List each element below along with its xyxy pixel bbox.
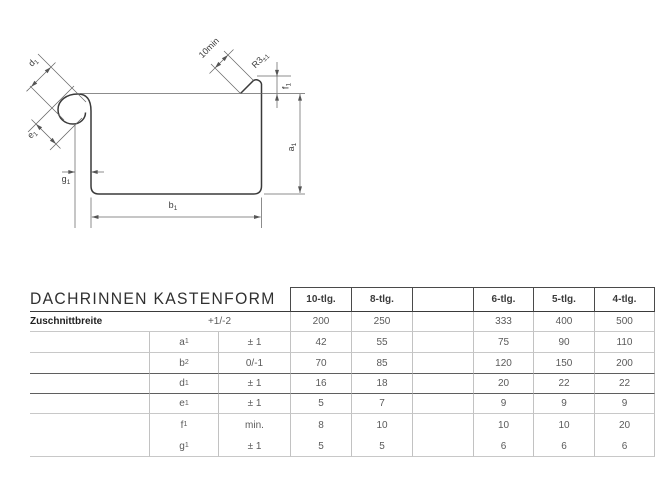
tolerance-g1: ± 1 xyxy=(218,436,290,457)
value-cell: 16 xyxy=(290,374,351,394)
flange-tail-1 xyxy=(210,68,216,74)
row-spacer xyxy=(30,394,149,414)
value-cell: 10 xyxy=(533,414,594,436)
value-cell xyxy=(412,414,473,436)
row-spacer xyxy=(30,436,149,457)
value-cell: 9 xyxy=(533,394,594,414)
value-cell xyxy=(412,436,473,457)
value-cell: 18 xyxy=(351,374,412,394)
page-title: DACHRINNEN KASTENFORM xyxy=(30,287,290,312)
tolerance-f1: min. xyxy=(218,414,290,436)
gutter-profile-drawing: d1 e1 g1 b1 a1 f1 10min R3±1 xyxy=(0,0,670,282)
dim-label-flange-min: 10min xyxy=(197,36,221,60)
flange-dimension xyxy=(215,55,228,68)
dim-label-g1: g1 xyxy=(62,174,71,186)
value-cell: 90 xyxy=(533,332,594,353)
row-spacer xyxy=(30,332,149,353)
value-cell: 6 xyxy=(533,436,594,457)
row-spacer xyxy=(30,414,149,436)
value-cell: 75 xyxy=(473,332,533,353)
value-cell: 9 xyxy=(594,394,655,414)
value-cell: 70 xyxy=(290,353,351,374)
spec-table: DACHRINNEN KASTENFORM 10-tlg. 8-tlg. 6-t… xyxy=(30,287,655,457)
dimension-lines xyxy=(27,50,306,229)
value-cell xyxy=(412,332,473,353)
flange-extension-1 xyxy=(211,64,241,94)
tolerance-b2: 0/-1 xyxy=(218,353,290,374)
value-cell: 6 xyxy=(473,436,533,457)
value-cell: 400 xyxy=(533,312,594,332)
d1-dimension xyxy=(31,67,51,87)
value-cell xyxy=(412,312,473,332)
value-cell: 20 xyxy=(594,414,655,436)
value-cell: 8 xyxy=(290,414,351,436)
catalog-page: d1 e1 g1 b1 a1 f1 10min R3±1 DACHRINNEN … xyxy=(0,0,670,491)
d1-tail-1 xyxy=(51,63,56,68)
dim-label-f1: f1 xyxy=(281,83,293,90)
flange-tail-2 xyxy=(228,50,234,56)
value-cell: 6 xyxy=(594,436,655,457)
value-cell: 7 xyxy=(351,394,412,414)
e1-line-upper xyxy=(28,86,74,132)
dim-label-radius: R3±1 xyxy=(250,49,272,71)
dim-label-e1: e1 xyxy=(25,127,40,142)
tolerance-e1: ± 1 xyxy=(218,394,290,414)
column-header-5tlg: 5-tlg. xyxy=(533,287,594,312)
column-header-8tlg: 8-tlg. xyxy=(351,287,412,312)
symbol-g1: g1 xyxy=(149,436,218,457)
d1-tail-2 xyxy=(27,87,32,91)
value-cell: 22 xyxy=(594,374,655,394)
value-cell: 10 xyxy=(351,414,412,436)
dim-label-d1: d1 xyxy=(26,55,41,70)
value-cell: 22 xyxy=(533,374,594,394)
column-header-4tlg: 4-tlg. xyxy=(594,287,655,312)
value-cell: 150 xyxy=(533,353,594,374)
e1-dimension xyxy=(36,124,56,144)
value-cell: 200 xyxy=(594,353,655,374)
dim-label-a1: a1 xyxy=(286,142,298,151)
e1-tail-2 xyxy=(56,144,61,149)
value-cell: 42 xyxy=(290,332,351,353)
dim-label-b1: b1 xyxy=(169,200,178,212)
value-cell: 10 xyxy=(473,414,533,436)
value-cell xyxy=(412,374,473,394)
gutter-profile xyxy=(58,80,262,194)
value-cell: 85 xyxy=(351,353,412,374)
column-header-10tlg: 10-tlg. xyxy=(290,287,351,312)
tolerance-a1: ± 1 xyxy=(218,332,290,353)
dimension-labels: d1 e1 g1 b1 a1 f1 10min R3±1 xyxy=(25,36,298,212)
d1-tangent-upper xyxy=(38,54,86,102)
value-cell xyxy=(412,394,473,414)
symbol-e1: e1 xyxy=(149,394,218,414)
tolerance-d1: ± 1 xyxy=(218,374,290,394)
value-cell: 200 xyxy=(290,312,351,332)
symbol-a1: a1 xyxy=(149,332,218,353)
value-cell: 9 xyxy=(473,394,533,414)
value-cell: 55 xyxy=(351,332,412,353)
column-header-blank xyxy=(412,287,473,312)
value-cell: 120 xyxy=(473,353,533,374)
value-cell: 500 xyxy=(594,312,655,332)
symbol-d1: d1 xyxy=(149,374,218,394)
row-label-zuschnittbreite: Zuschnittbreite xyxy=(30,312,149,332)
value-cell: 20 xyxy=(473,374,533,394)
flange-extension-2 xyxy=(224,51,254,81)
symbol-b2: b2 xyxy=(149,353,218,374)
flange-back-wall-bottom xyxy=(91,80,262,194)
e1-tail-1 xyxy=(32,120,37,125)
value-cell: 5 xyxy=(290,394,351,414)
value-cell: 250 xyxy=(351,312,412,332)
value-cell: 110 xyxy=(594,332,655,353)
value-cell xyxy=(412,353,473,374)
symbol-f1: f1 xyxy=(149,414,218,436)
value-cell: 333 xyxy=(473,312,533,332)
row-spacer xyxy=(30,374,149,394)
value-cell: 5 xyxy=(290,436,351,457)
value-cell: 5 xyxy=(351,436,412,457)
tolerance-zuschnittbreite: +1/-2 xyxy=(149,312,290,332)
column-header-6tlg: 6-tlg. xyxy=(473,287,533,312)
row-spacer xyxy=(30,353,149,374)
